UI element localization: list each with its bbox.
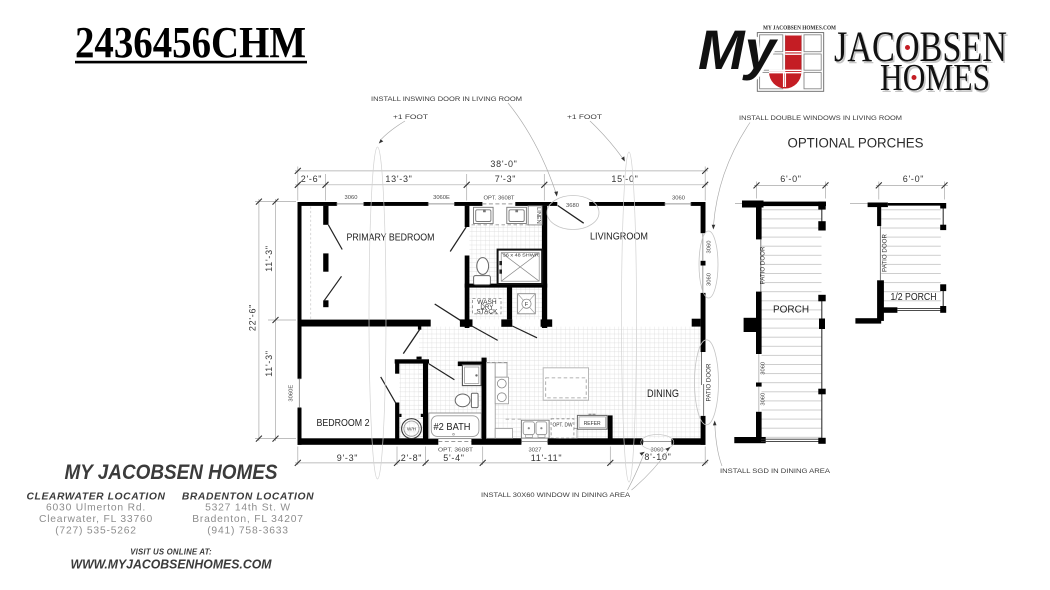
svg-text:1/2 PORCH: 1/2 PORCH: [891, 292, 937, 303]
svg-text:INSTALL SGD IN DINING AREA: INSTALL SGD IN DINING AREA: [720, 468, 831, 475]
svg-text:3060: 3060: [761, 362, 767, 375]
svg-text:DINING: DINING: [647, 388, 679, 400]
svg-text:2'-8": 2'-8": [401, 453, 422, 463]
svg-text:WWW.MYJACOBSENHOMES.COM: WWW.MYJACOBSENHOMES.COM: [71, 557, 273, 572]
svg-text:HOMES: HOMES: [880, 57, 990, 99]
svg-text:5327 14th St. W: 5327 14th St. W: [205, 503, 291, 514]
svg-text:PATIO DOOR: PATIO DOOR: [760, 246, 767, 284]
svg-text:INSTALL 30X60 WINDOW IN DINING: INSTALL 30X60 WINDOW IN DINING AREA: [481, 492, 631, 499]
svg-text:6030 Ulmerton Rd.: 6030 Ulmerton Rd.: [46, 503, 146, 514]
svg-text:My: My: [698, 18, 779, 81]
svg-text:6'-0": 6'-0": [780, 174, 801, 184]
svg-text:11'-3": 11'-3": [264, 350, 274, 376]
svg-text:VISIT US ONLINE AT:: VISIT US ONLINE AT:: [130, 548, 212, 557]
svg-text:#2 BATH: #2 BATH: [434, 422, 471, 433]
svg-text:OPT. 3608T: OPT. 3608T: [484, 196, 515, 202]
svg-text:PATIO DOOR: PATIO DOOR: [706, 363, 713, 401]
svg-text:2436456CHM: 2436456CHM: [75, 18, 306, 67]
svg-text:11'-11": 11'-11": [531, 453, 563, 463]
svg-text:F: F: [525, 302, 529, 308]
svg-text:9'-3": 9'-3": [337, 453, 358, 463]
svg-text:PRIMARY BEDROOM: PRIMARY BEDROOM: [347, 233, 435, 244]
svg-text:36 x 48 SHWR: 36 x 48 SHWR: [503, 253, 540, 259]
svg-text:3060: 3060: [761, 393, 767, 406]
svg-text:OPTIONAL PORCHES: OPTIONAL PORCHES: [788, 136, 924, 151]
svg-text:W/H: W/H: [407, 426, 416, 431]
svg-text:INSTALL DOUBLE WINDOWS IN LIVI: INSTALL DOUBLE WINDOWS IN LIVING ROOM: [739, 115, 902, 122]
svg-text:11'-3": 11'-3": [264, 245, 274, 271]
svg-text:CLEARWATER LOCATION: CLEARWATER LOCATION: [27, 492, 166, 503]
svg-text:3680: 3680: [566, 203, 579, 209]
svg-text:BEDROOM 2: BEDROOM 2: [317, 418, 370, 429]
svg-text:7'-3": 7'-3": [495, 174, 516, 184]
svg-text:3060: 3060: [672, 196, 685, 202]
svg-text:PORCH: PORCH: [773, 305, 809, 316]
svg-text:+1 FOOT: +1 FOOT: [567, 114, 602, 121]
svg-text:(941) 758-3633: (941) 758-3633: [207, 526, 289, 537]
svg-text:STACK: STACK: [476, 309, 498, 316]
svg-text:Bradenton, FL 34207: Bradenton, FL 34207: [192, 514, 304, 525]
svg-text:PATIO DOOR: PATIO DOOR: [882, 234, 889, 272]
svg-text:13'-3": 13'-3": [385, 174, 412, 184]
svg-text:LIVINGROOM: LIVINGROOM: [590, 231, 648, 243]
svg-text:2'-6": 2'-6": [301, 174, 322, 184]
svg-text:6'-0": 6'-0": [903, 174, 924, 184]
svg-text:REFER: REFER: [584, 421, 601, 427]
svg-text:22'-6": 22'-6": [248, 304, 258, 331]
svg-text:5'-4": 5'-4": [443, 453, 464, 463]
svg-text:OPT. DW: OPT. DW: [553, 422, 573, 428]
svg-text:3060E: 3060E: [433, 195, 450, 201]
svg-text:(727) 535-5262: (727) 535-5262: [55, 526, 137, 537]
svg-text:8'-10": 8'-10": [644, 452, 671, 462]
svg-text:LINEN: LINEN: [535, 207, 541, 223]
svg-text:Clearwater, FL 33760: Clearwater, FL 33760: [39, 514, 153, 525]
svg-text:3060E: 3060E: [289, 385, 295, 402]
svg-text:3060: 3060: [707, 273, 713, 286]
svg-text:+1 FOOT: +1 FOOT: [393, 114, 428, 121]
svg-text:3060: 3060: [345, 195, 358, 201]
svg-text:38'-0": 38'-0": [490, 159, 517, 169]
svg-text:MY JACOBSEN HOMES: MY JACOBSEN HOMES: [65, 461, 278, 484]
svg-text:BRADENTON LOCATION: BRADENTON LOCATION: [182, 492, 314, 503]
svg-text:3060: 3060: [707, 241, 713, 254]
svg-text:INSTALL INSWING DOOR IN LIVING: INSTALL INSWING DOOR IN LIVING ROOM: [371, 96, 522, 103]
